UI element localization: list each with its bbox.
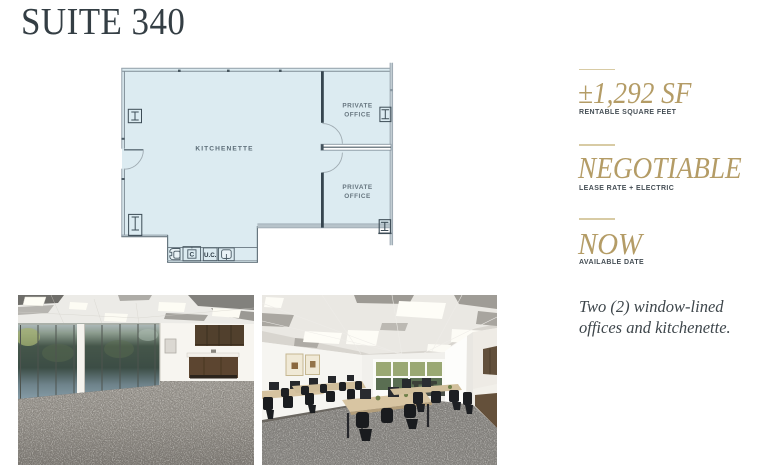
svg-text:OFFICE: OFFICE (344, 193, 371, 200)
svg-text:U.C.: U.C. (204, 252, 217, 259)
svg-text:PRIVATE: PRIVATE (342, 102, 372, 109)
svg-text:C: C (190, 251, 195, 258)
svg-text:PRIVATE: PRIVATE (342, 184, 372, 191)
svg-text:OFFICE: OFFICE (344, 112, 371, 119)
svg-text:KITCHENETTE: KITCHENETTE (195, 145, 253, 152)
